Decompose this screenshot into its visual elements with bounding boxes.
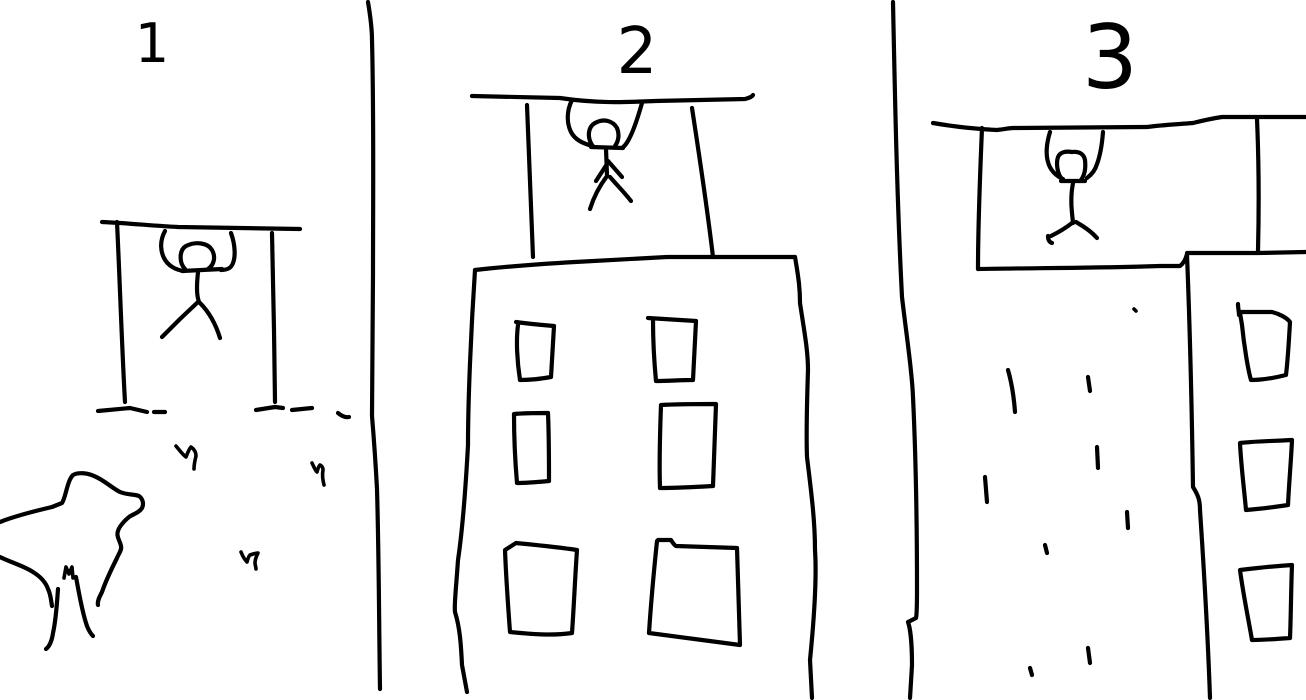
rain-dash bbox=[1008, 370, 1015, 412]
building-window bbox=[1240, 565, 1292, 640]
building-window bbox=[648, 318, 696, 381]
figure-head bbox=[1057, 152, 1085, 180]
building-3 bbox=[1134, 252, 1306, 698]
rain-dash bbox=[1097, 447, 1098, 468]
figure-arm-right bbox=[622, 103, 642, 148]
panel-3-number: 3 bbox=[1082, 6, 1138, 109]
figure-body bbox=[1071, 183, 1073, 223]
figure-leg-left bbox=[1051, 223, 1072, 236]
hanging-stick-figure-1 bbox=[161, 231, 235, 338]
figure-head bbox=[181, 243, 214, 269]
drawing-canvas: 1 bbox=[0, 0, 1306, 700]
rain-dash bbox=[985, 477, 987, 502]
figure-leg-right bbox=[1076, 222, 1097, 238]
ledge-bottom-line bbox=[978, 254, 1187, 269]
rain-dash bbox=[1088, 377, 1090, 391]
building-window bbox=[1238, 304, 1290, 380]
figure-leg-right bbox=[200, 303, 220, 338]
building-roof bbox=[1187, 252, 1306, 253]
panel-1-number: 1 bbox=[135, 12, 169, 75]
building-window bbox=[660, 404, 716, 488]
pullup-bar-left-foot bbox=[98, 408, 147, 412]
building-wall-right bbox=[795, 257, 816, 698]
rain-dash bbox=[1030, 668, 1032, 675]
building-window bbox=[514, 413, 549, 483]
ledge-edge-left bbox=[527, 105, 533, 257]
panel-divider-2 bbox=[893, 2, 917, 698]
hanging-stick-figure-3 bbox=[1047, 132, 1103, 243]
building-2 bbox=[455, 257, 816, 698]
panel-1: 1 bbox=[0, 12, 349, 649]
ledge-line-2 bbox=[472, 95, 753, 102]
ledge-post-right bbox=[1257, 119, 1259, 251]
building-window bbox=[1240, 440, 1292, 510]
figure-hands-line bbox=[182, 269, 222, 271]
rain-dash bbox=[1127, 512, 1128, 528]
dog-inner-leg-right bbox=[76, 577, 93, 636]
window-dot bbox=[1134, 309, 1136, 311]
figure-arm-tick-right bbox=[608, 161, 622, 177]
building-window bbox=[649, 540, 740, 645]
dog-body-outline bbox=[0, 473, 143, 605]
dog bbox=[0, 473, 143, 649]
building-window bbox=[505, 543, 577, 635]
pullup-bar-right-foot bbox=[256, 407, 283, 410]
dog-tail-mark bbox=[64, 567, 73, 578]
bird-mark bbox=[312, 463, 324, 485]
rain-dash bbox=[1088, 648, 1090, 663]
hanging-stick-figure-2 bbox=[568, 100, 642, 209]
pullup-bar-top bbox=[102, 222, 300, 229]
bird-mark bbox=[176, 446, 196, 469]
figure-arm-right bbox=[221, 233, 235, 270]
building-wall-left bbox=[1187, 255, 1210, 698]
figure-head bbox=[589, 121, 619, 146]
ledge-post-left bbox=[978, 128, 982, 269]
building-roof bbox=[475, 257, 795, 270]
ground-dash bbox=[292, 408, 312, 410]
ledge-line-3 bbox=[933, 117, 1306, 130]
figure-body bbox=[197, 272, 199, 302]
panel-divider-1 bbox=[368, 2, 380, 689]
building-wall-left bbox=[455, 270, 475, 692]
panel-3: 3 bbox=[933, 6, 1306, 698]
rain-dash bbox=[1045, 545, 1047, 553]
comic-drawing: 1 bbox=[0, 0, 1306, 700]
figure-arm-right bbox=[1087, 132, 1103, 178]
pullup-bar-right-post bbox=[272, 233, 275, 402]
figure-leg-right bbox=[610, 177, 631, 201]
panel-2-number: 2 bbox=[617, 15, 658, 89]
dog-front-leg bbox=[0, 557, 52, 606]
pullup-bar-left-post bbox=[117, 222, 125, 402]
rain-dashes bbox=[985, 370, 1128, 675]
bird-mark bbox=[241, 552, 258, 569]
ledge-edge-right bbox=[692, 108, 713, 257]
building-window bbox=[516, 322, 554, 380]
figure-leg-left bbox=[162, 302, 198, 337]
ground-dash bbox=[338, 413, 349, 417]
panel-2: 2 bbox=[455, 15, 816, 698]
